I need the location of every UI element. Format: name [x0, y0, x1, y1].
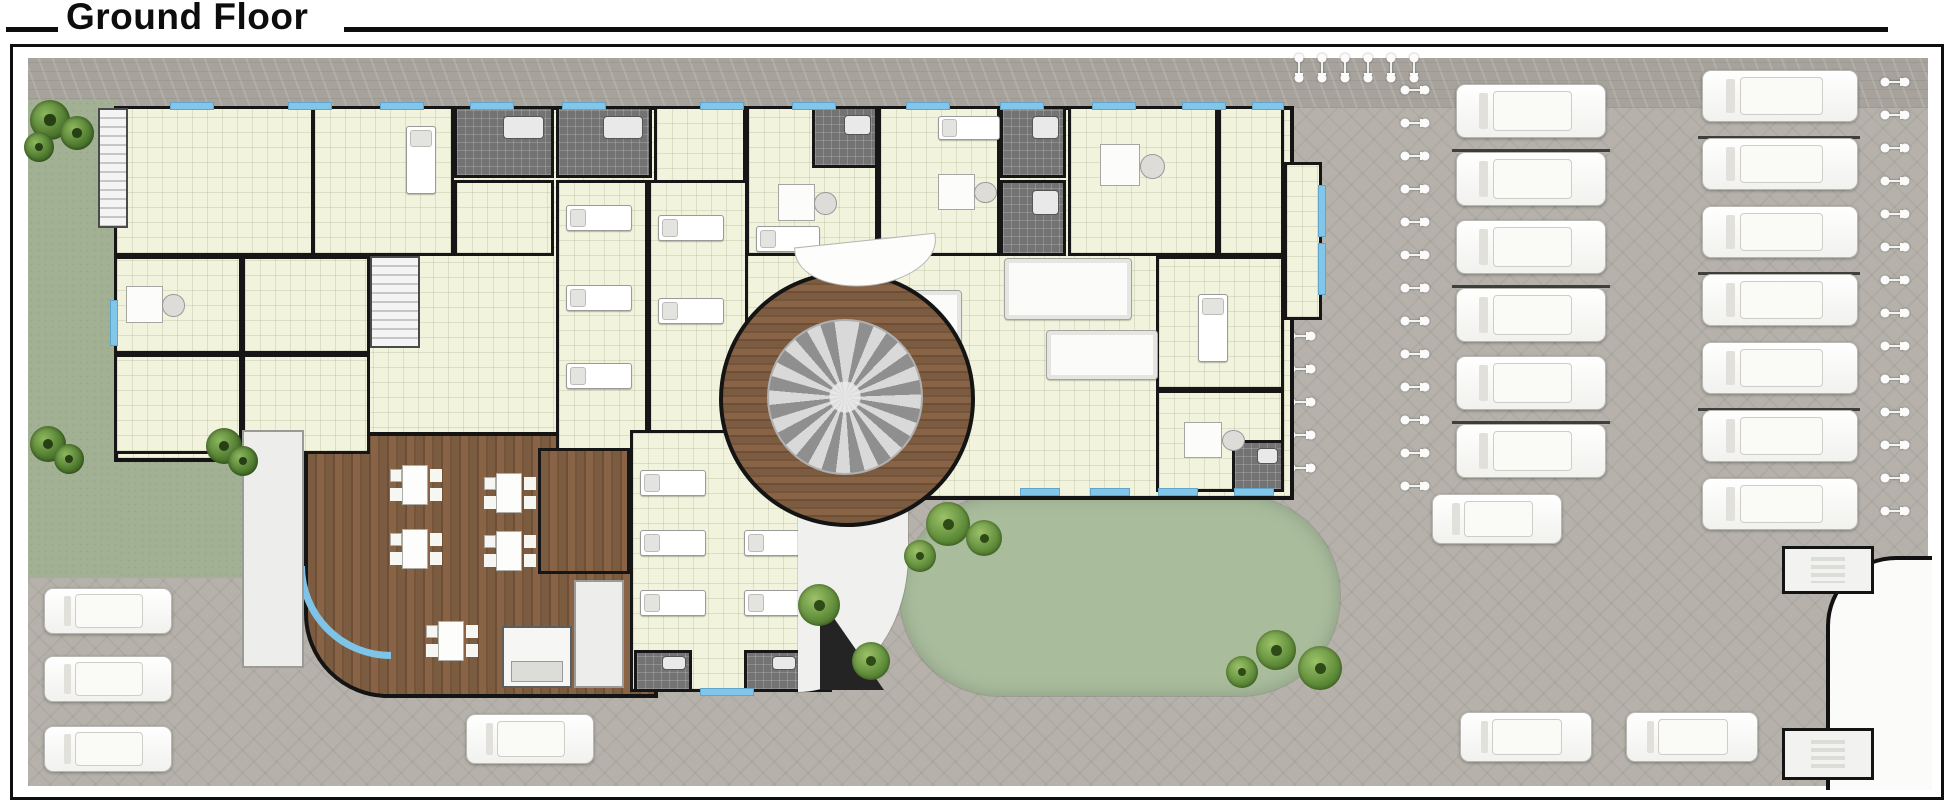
- shrub-icon: [1298, 646, 1342, 690]
- car-top-icon: [1432, 494, 1562, 544]
- car-top-icon: [1456, 220, 1606, 274]
- tree-icon: [60, 116, 94, 150]
- bicycle-top-icon: [1339, 53, 1351, 83]
- window-glass: [700, 688, 754, 696]
- car-top-icon: [1702, 206, 1858, 258]
- treatment-bed-icon: [640, 590, 706, 616]
- car-top-icon: [466, 714, 594, 764]
- car-top-icon: [1702, 410, 1858, 462]
- office-desk-icon: [778, 178, 838, 226]
- bathroom: [454, 106, 554, 178]
- bicycle-top-icon: [1316, 53, 1328, 83]
- treatment-bed-icon: [658, 298, 724, 324]
- bicycle-top-icon: [1400, 381, 1430, 393]
- window-glass: [562, 102, 606, 110]
- bicycle-top-icon: [1400, 414, 1430, 426]
- car-top-icon: [1702, 274, 1858, 326]
- bicycle-top-icon: [1400, 216, 1430, 228]
- car-top-icon: [1702, 70, 1858, 122]
- window-glass: [110, 300, 118, 346]
- treatment-bed-icon: [1198, 294, 1228, 362]
- dining-table-icon: [486, 470, 532, 516]
- window-glass: [792, 102, 836, 110]
- window-glass: [700, 102, 744, 110]
- bicycle-top-icon: [1880, 76, 1910, 88]
- bicycle-top-icon: [1880, 439, 1910, 451]
- office-desk-icon: [1184, 416, 1246, 462]
- car-top-icon: [1456, 84, 1606, 138]
- bicycle-top-icon: [1400, 282, 1430, 294]
- shrub-icon: [904, 540, 936, 572]
- treatment-bed-icon: [640, 470, 706, 496]
- bicycle-top-icon: [1400, 117, 1430, 129]
- round-rug-icon: [767, 319, 923, 475]
- room: [242, 256, 370, 354]
- treatment-bed-icon: [640, 530, 706, 556]
- window-glass: [1252, 102, 1284, 110]
- bathroom: [556, 106, 652, 178]
- bicycle-top-icon: [1400, 183, 1430, 195]
- sofa-icon: [1046, 330, 1158, 380]
- bicycle-top-icon: [1880, 505, 1910, 517]
- bathroom: [634, 650, 692, 692]
- walkway: [574, 580, 624, 688]
- window-glass: [380, 102, 424, 110]
- staircase-icon: [370, 256, 420, 348]
- bathroom: [1000, 180, 1066, 256]
- bicycle-top-icon: [1880, 406, 1910, 418]
- office-desk-icon: [126, 280, 186, 328]
- bicycle-top-icon: [1400, 348, 1430, 360]
- dining-table-icon: [392, 526, 438, 572]
- office-desk-icon: [938, 168, 998, 214]
- concrete-sidewalk-band: [28, 58, 1928, 108]
- car-top-icon: [1456, 356, 1606, 410]
- dining-table-icon: [486, 528, 532, 574]
- treatment-bed-icon: [406, 126, 436, 194]
- bicycle-top-icon: [1880, 109, 1910, 121]
- bicycle-top-icon: [1400, 150, 1430, 162]
- bicycle-top-icon: [1880, 274, 1910, 286]
- bicycle-top-icon: [1880, 340, 1910, 352]
- bicycle-top-icon: [1880, 142, 1910, 154]
- window-glass: [1318, 185, 1326, 237]
- shrub-icon: [926, 502, 970, 546]
- dining-table-icon: [428, 618, 474, 664]
- bicycle-top-icon: [1293, 53, 1305, 83]
- treatment-bed-icon: [938, 116, 1000, 140]
- car-top-icon: [44, 656, 172, 702]
- bicycle-top-icon: [1385, 53, 1397, 83]
- bicycle-top-icon: [1400, 447, 1430, 459]
- car-top-icon: [1456, 152, 1606, 206]
- car-top-icon: [1702, 138, 1858, 190]
- treatment-bed-icon: [566, 285, 632, 311]
- bicycle-top-icon: [1880, 175, 1910, 187]
- window-glass: [170, 102, 214, 110]
- bicycle-top-icon: [1880, 472, 1910, 484]
- kitchen-counter: [502, 626, 572, 688]
- window-glass: [1182, 102, 1226, 110]
- treatment-bed-icon: [566, 205, 632, 231]
- bicycle-top-icon: [1400, 84, 1430, 96]
- window-glass: [1234, 488, 1274, 496]
- window-glass: [1158, 488, 1198, 496]
- bathroom: [812, 106, 878, 168]
- office-desk-icon: [1100, 138, 1166, 192]
- bathroom: [744, 650, 802, 692]
- tree-icon: [228, 446, 258, 476]
- private-dining-room: [538, 448, 630, 574]
- guard-room: [1782, 728, 1874, 780]
- shrub-icon: [1256, 630, 1296, 670]
- tree-icon: [24, 132, 54, 162]
- car-top-icon: [1702, 478, 1858, 530]
- window-glass: [1000, 102, 1044, 110]
- room: [454, 180, 554, 256]
- car-top-icon: [1702, 342, 1858, 394]
- treatment-bed-icon: [566, 363, 632, 389]
- window-glass: [470, 102, 514, 110]
- bicycle-top-icon: [1408, 53, 1420, 83]
- room: [114, 106, 314, 256]
- shrub-icon: [852, 642, 890, 680]
- shrub-icon: [966, 520, 1002, 556]
- window-glass: [1092, 102, 1136, 110]
- window-glass: [1020, 488, 1060, 496]
- car-top-icon: [1456, 288, 1606, 342]
- bicycle-top-icon: [1880, 373, 1910, 385]
- bicycle-top-icon: [1880, 241, 1910, 253]
- room: [1284, 162, 1322, 320]
- bicycle-top-icon: [1400, 249, 1430, 261]
- shrub-icon: [798, 584, 840, 626]
- car-top-icon: [1456, 424, 1606, 478]
- car-top-icon: [1626, 712, 1758, 762]
- car-top-icon: [44, 588, 172, 634]
- tree-icon: [54, 444, 84, 474]
- treatment-bed-icon: [658, 215, 724, 241]
- bicycle-top-icon: [1880, 307, 1910, 319]
- shrub-icon: [1226, 656, 1258, 688]
- guard-room: [1782, 546, 1874, 594]
- staircase-icon: [98, 108, 128, 228]
- car-top-icon: [44, 726, 172, 772]
- window-glass: [1090, 488, 1130, 496]
- dining-table-icon: [392, 462, 438, 508]
- site-plan: [0, 0, 1954, 808]
- car-top-icon: [1460, 712, 1592, 762]
- bicycle-top-icon: [1362, 53, 1374, 83]
- bathroom: [1000, 106, 1066, 178]
- bicycle-top-icon: [1880, 208, 1910, 220]
- window-glass: [906, 102, 950, 110]
- window-glass: [288, 102, 332, 110]
- bicycle-top-icon: [1400, 315, 1430, 327]
- sofa-icon: [1004, 258, 1132, 320]
- window-glass: [1318, 243, 1326, 295]
- room: [1218, 106, 1284, 256]
- bicycle-top-icon: [1400, 480, 1430, 492]
